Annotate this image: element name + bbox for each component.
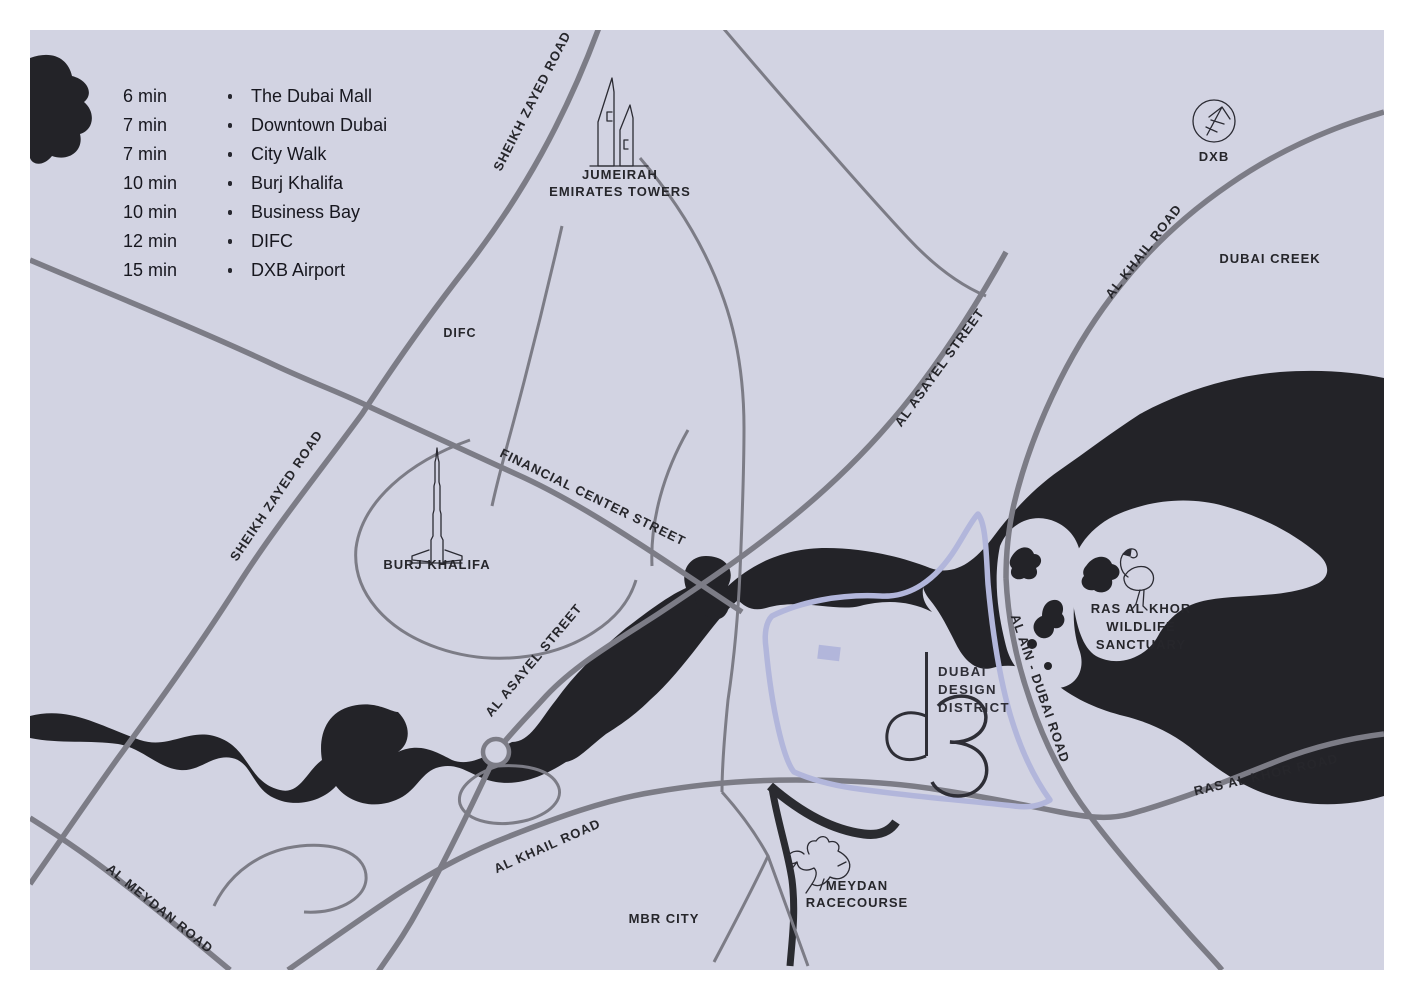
legend-bullet <box>228 181 233 186</box>
legend-place: City Walk <box>251 144 387 165</box>
label-dubai-creek: DUBAI CREEK <box>1219 251 1320 266</box>
legend-place: The Dubai Mall <box>251 86 387 107</box>
legend-bullet <box>228 152 233 157</box>
travel-time-legend: 6 min The Dubai Mall 7 min Downtown Duba… <box>123 82 387 285</box>
legend-bullet <box>228 239 233 244</box>
legend-place: Business Bay <box>251 202 387 223</box>
label-mbr-city: MBR CITY <box>629 911 700 926</box>
label-ras-al-khor-2: WILDLIFE <box>1106 619 1175 634</box>
roundabout <box>483 739 509 765</box>
legend-place: Burj Khalifa <box>251 173 387 194</box>
legend-time: 15 min <box>123 260 209 281</box>
legend-time: 10 min <box>123 173 209 194</box>
label-ras-al-khor-3: SANCTUARY <box>1096 637 1186 652</box>
map-page: DUBAI DESIGN DISTRICT SHEIKH ZAYED ROAD … <box>0 0 1414 1000</box>
d3-boundary-notch <box>817 645 841 662</box>
label-meydan-2: RACECOURSE <box>806 895 908 910</box>
legend-time: 12 min <box>123 231 209 252</box>
label-jumeirah-1: JUMEIRAH <box>582 167 658 182</box>
label-meydan-1: MEYDAN <box>826 878 888 893</box>
legend-bullet <box>228 210 233 215</box>
label-dxb: DXB <box>1199 149 1229 164</box>
d3-logo-line1: DUBAI <box>938 664 987 679</box>
legend-bullet <box>228 123 233 128</box>
legend-time: 10 min <box>123 202 209 223</box>
label-ras-al-khor-1: RAS AL KHOR <box>1091 601 1192 616</box>
legend-time: 6 min <box>123 86 209 107</box>
label-burj-khalifa: BURJ KHALIFA <box>383 557 490 572</box>
d3-logo-line2: DESIGN <box>938 682 997 697</box>
d3-logo-line3: DISTRICT <box>938 700 1010 715</box>
label-jumeirah-2: EMIRATES TOWERS <box>549 184 691 199</box>
label-difc: DIFC <box>443 326 476 340</box>
legend-bullet <box>228 268 233 273</box>
legend-place: Downtown Dubai <box>251 115 387 136</box>
wetland-islet <box>1044 662 1052 670</box>
legend-time: 7 min <box>123 144 209 165</box>
legend-bullet <box>228 94 233 99</box>
legend-time: 7 min <box>123 115 209 136</box>
legend-place: DIFC <box>251 231 387 252</box>
legend-place: DXB Airport <box>251 260 387 281</box>
